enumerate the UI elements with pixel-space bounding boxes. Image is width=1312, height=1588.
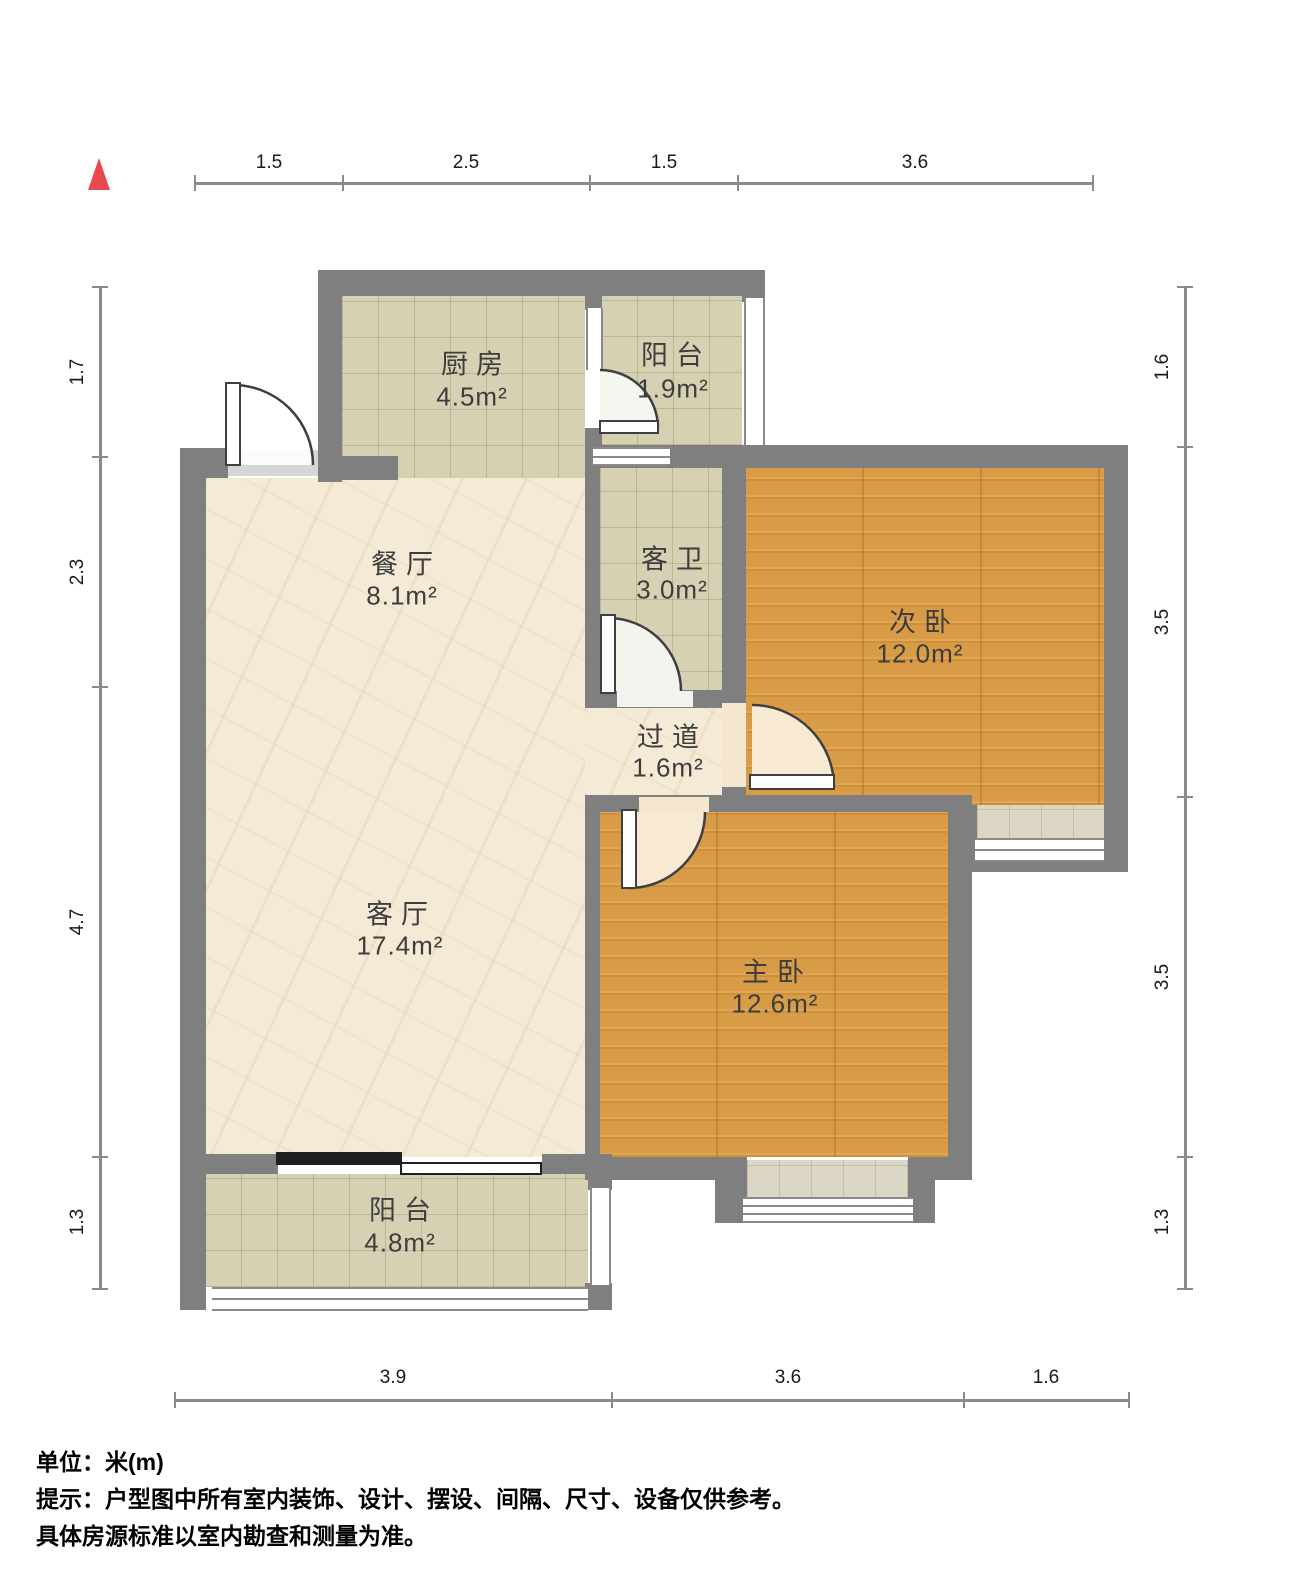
dim-label: 1.5 xyxy=(651,152,677,174)
dim-tick xyxy=(92,686,108,688)
room-label: 过道 xyxy=(637,716,707,755)
floor-plan-page: 厨房 4.5m² 阳台 1.9m² 餐厅 8.1m² 客卫 3.0m² 次卧 1… xyxy=(0,0,1312,1588)
dimension-line-left xyxy=(99,287,102,1290)
wall xyxy=(318,296,342,482)
dim-label: 1.3 xyxy=(67,1209,89,1235)
dim-label: 4.7 xyxy=(67,909,89,935)
dim-tick xyxy=(342,175,344,191)
sliding-door-panel xyxy=(276,1152,402,1165)
dimension-line-top xyxy=(195,182,1093,185)
bay-window xyxy=(975,838,1104,862)
bedroom2-bay-floor xyxy=(977,805,1104,842)
dim-tick xyxy=(1177,1288,1193,1290)
room-label: 次卧 xyxy=(889,601,959,640)
dim-tick xyxy=(1092,175,1094,191)
window xyxy=(586,308,603,370)
dim-tick xyxy=(194,175,196,191)
dim-label: 2.3 xyxy=(67,559,89,585)
wall xyxy=(588,1157,747,1180)
window xyxy=(593,447,670,466)
dim-label: 1.6 xyxy=(1033,1367,1059,1389)
dim-label: 3.6 xyxy=(775,1367,801,1389)
dim-tick xyxy=(589,175,591,191)
dim-tick xyxy=(92,1156,108,1158)
dim-tick xyxy=(92,456,108,458)
room-label: 阳台 xyxy=(641,334,711,373)
dim-tick xyxy=(1177,286,1193,288)
dimension-line-bottom xyxy=(175,1399,1129,1402)
wall xyxy=(1104,445,1128,872)
room-label: 厨房 xyxy=(441,343,511,382)
room-area: 4.8m² xyxy=(364,1228,435,1259)
room-area: 1.9m² xyxy=(637,374,708,405)
dim-label: 3.6 xyxy=(902,152,928,174)
dim-tick xyxy=(963,1392,965,1408)
room-area: 17.4m² xyxy=(357,931,444,962)
dim-tick xyxy=(1177,446,1193,448)
dim-tick xyxy=(92,1288,108,1290)
dim-tick xyxy=(1177,796,1193,798)
room-area: 3.0m² xyxy=(636,575,707,606)
room-label: 客卫 xyxy=(641,538,711,577)
dim-label: 1.3 xyxy=(1152,1209,1174,1235)
room-label: 客厅 xyxy=(366,893,436,932)
dimension-line-right xyxy=(1184,287,1187,1290)
dim-tick xyxy=(737,175,739,191)
window xyxy=(212,1287,588,1311)
wall xyxy=(205,1154,278,1174)
wall xyxy=(585,468,600,708)
wall xyxy=(180,448,206,1310)
room-area: 8.1m² xyxy=(366,581,437,612)
room-area: 1.6m² xyxy=(632,753,703,784)
dim-label: 1.7 xyxy=(67,359,89,385)
wall xyxy=(908,1157,972,1180)
bay-window xyxy=(743,1197,913,1223)
window xyxy=(744,298,765,445)
entry-threshold xyxy=(228,450,318,476)
dim-label: 3.5 xyxy=(1152,964,1174,990)
dim-label: 1.6 xyxy=(1152,354,1174,380)
dim-tick xyxy=(611,1392,613,1408)
wall xyxy=(542,1154,590,1174)
dim-tick xyxy=(1128,1392,1130,1408)
bedroom2-door-opening xyxy=(722,703,746,787)
wall xyxy=(585,1283,612,1310)
wall xyxy=(318,270,765,296)
bathroom-door-threshold xyxy=(617,691,693,707)
room-label: 餐厅 xyxy=(371,543,441,582)
master-bay-floor xyxy=(747,1160,908,1198)
wall xyxy=(722,468,746,703)
sliding-door-panel xyxy=(400,1162,542,1175)
dim-label: 2.5 xyxy=(453,152,479,174)
room-area: 12.0m² xyxy=(877,639,964,670)
dim-label: 1.5 xyxy=(256,152,282,174)
wall xyxy=(342,456,398,480)
dim-tick xyxy=(92,286,108,288)
dim-label: 3.9 xyxy=(380,1367,406,1389)
note-disclaimer-2: 具体房源标准以室内勘查和测量为准。 xyxy=(36,1518,795,1555)
north-arrow-icon xyxy=(88,158,110,190)
room-label: 阳台 xyxy=(369,1189,439,1228)
room-area: 12.6m² xyxy=(732,989,819,1020)
note-unit: 单位：米(m) xyxy=(36,1444,795,1481)
wall xyxy=(948,805,977,862)
window xyxy=(590,1188,611,1285)
dim-tick xyxy=(1177,1156,1193,1158)
master-door-opening xyxy=(639,797,709,812)
footnotes: 单位：米(m) 提示：户型图中所有室内装饰、设计、摆设、间隔、尺寸、设备仅供参考… xyxy=(36,1444,795,1555)
note-disclaimer-1: 提示：户型图中所有室内装饰、设计、摆设、间隔、尺寸、设备仅供参考。 xyxy=(36,1481,795,1518)
dim-label: 3.5 xyxy=(1152,609,1174,635)
room-area: 4.5m² xyxy=(436,382,507,413)
wall xyxy=(585,795,600,1180)
dim-tick xyxy=(174,1392,176,1408)
room-label: 主卧 xyxy=(742,951,812,990)
